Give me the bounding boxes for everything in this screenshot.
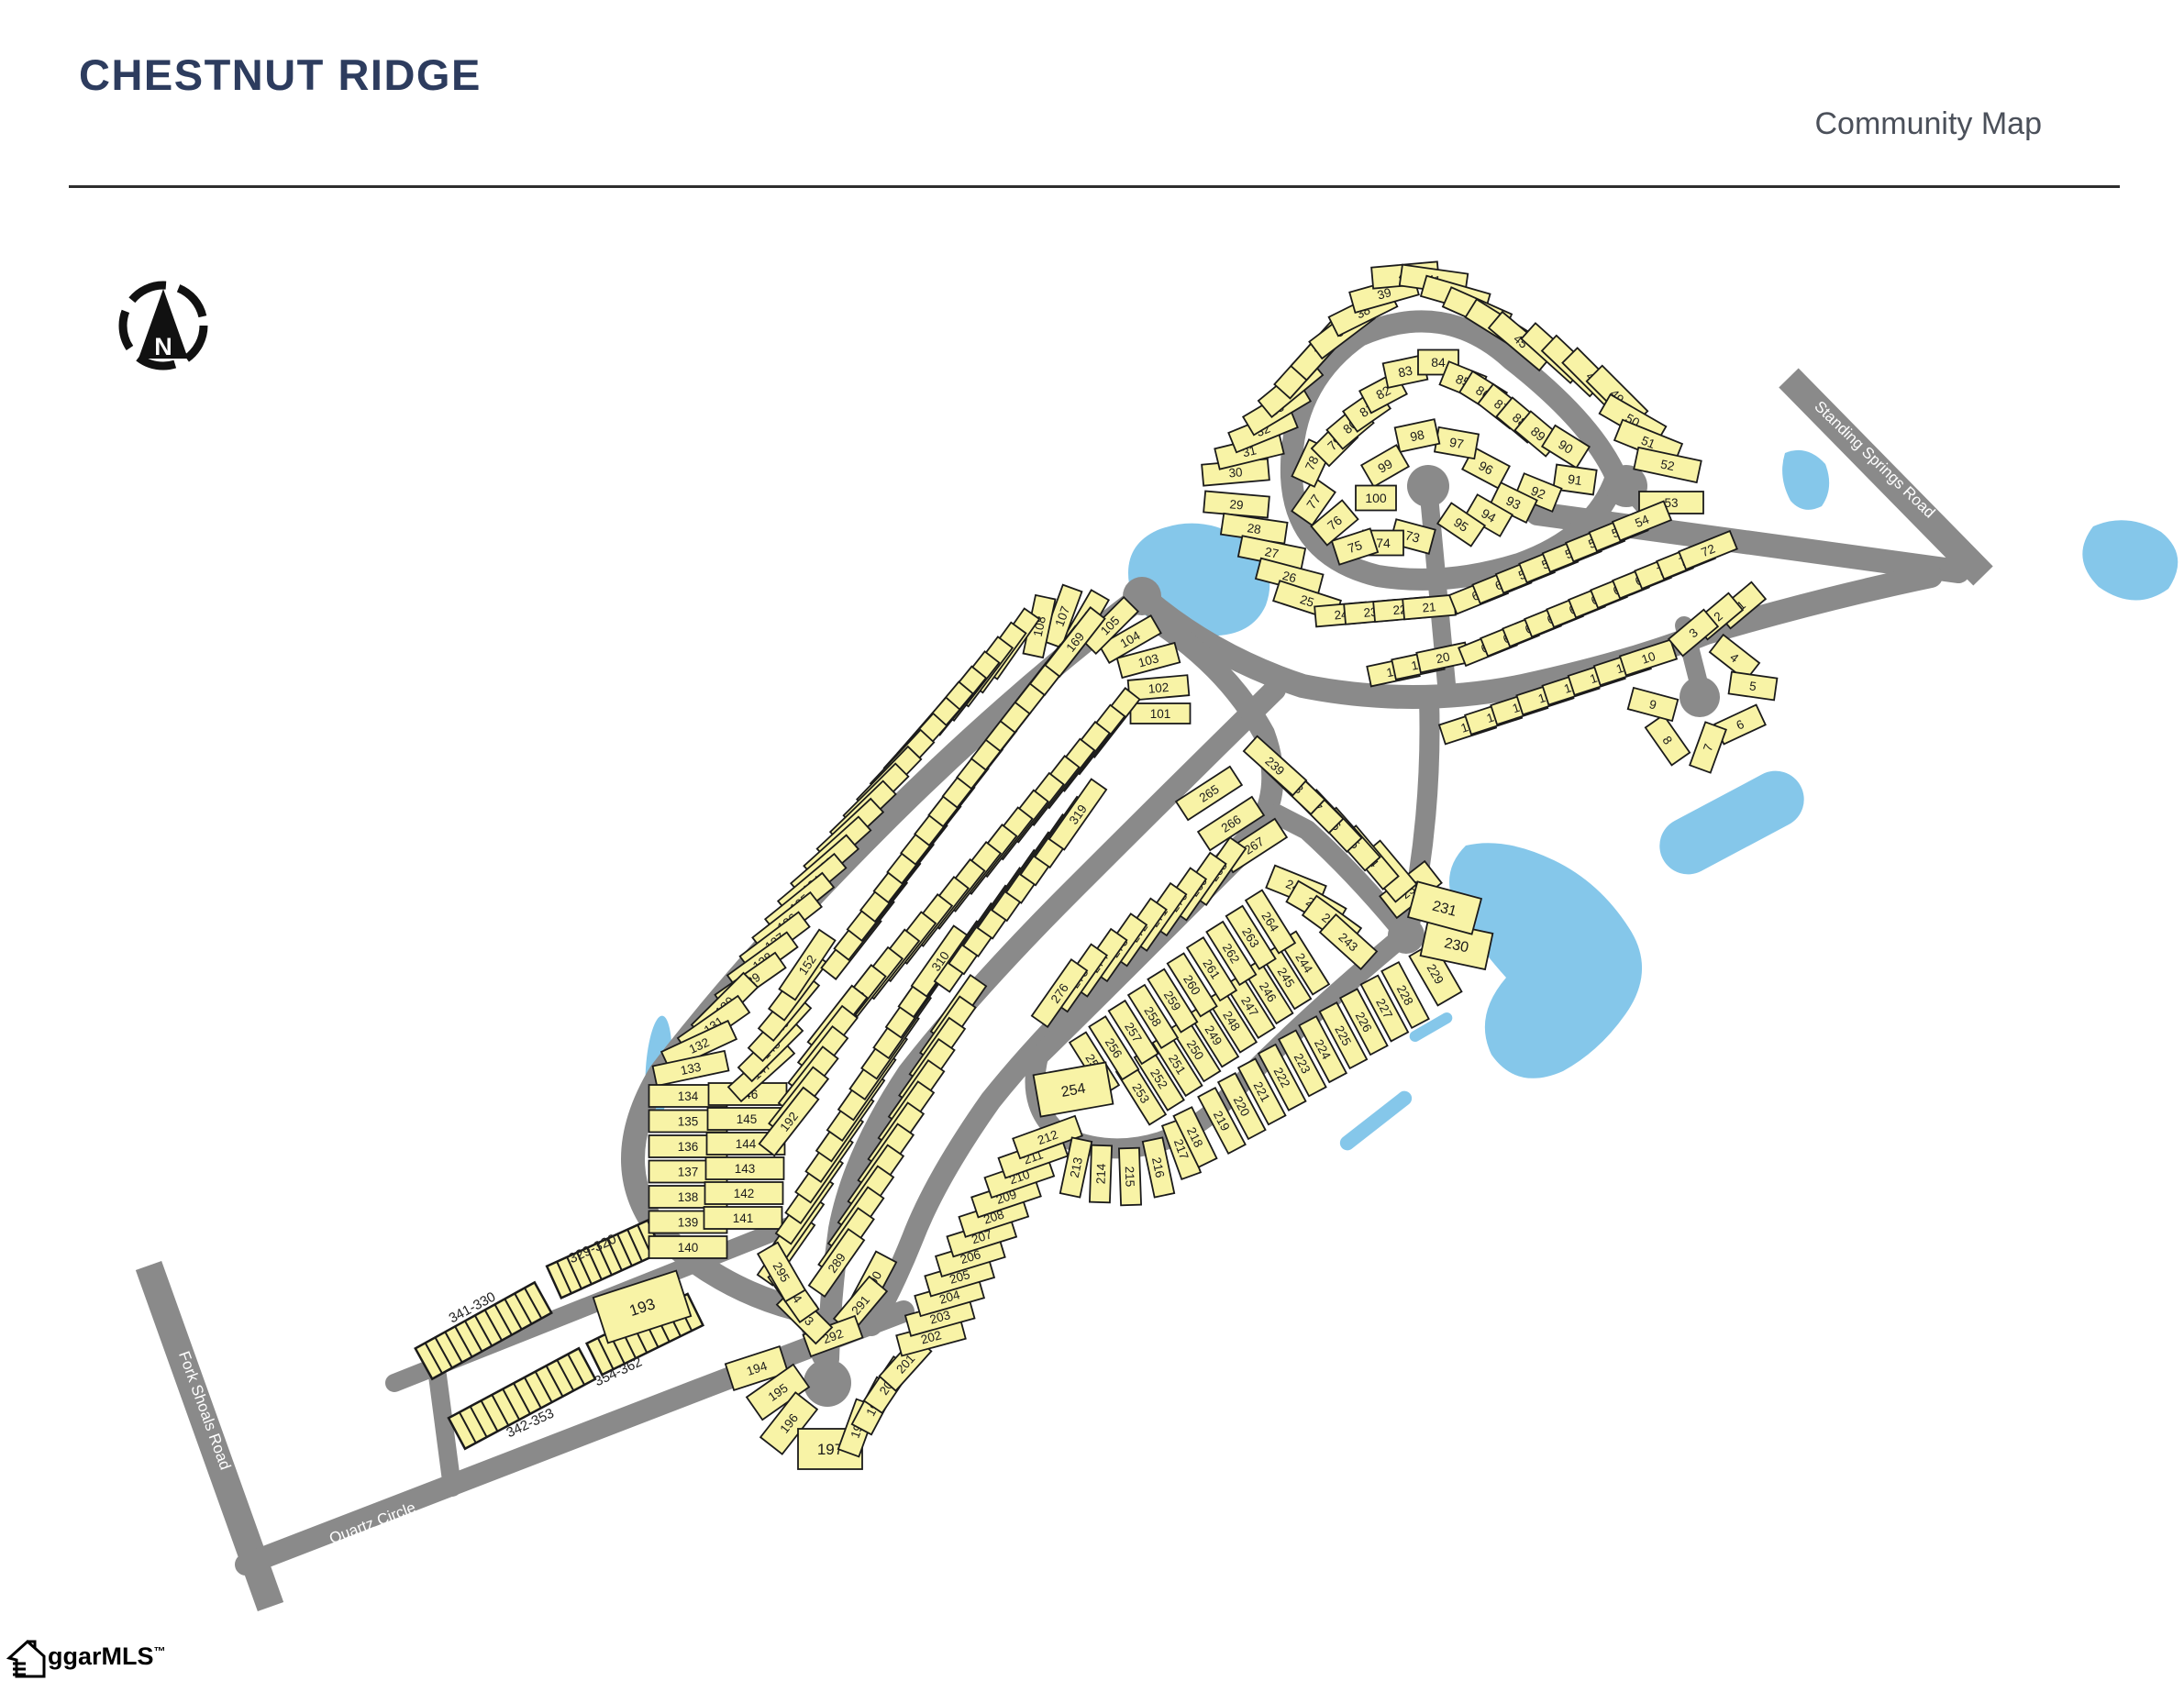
lot-98: 98 <box>1395 419 1440 452</box>
lot-143: 143 <box>706 1157 784 1179</box>
lot-97: 97 <box>1435 427 1479 459</box>
road-label: Standing Springs Road <box>1811 397 1938 521</box>
lot-21: 21 <box>1402 595 1456 620</box>
lot-29: 29 <box>1203 491 1269 517</box>
lot-number: 27 <box>1264 545 1280 561</box>
pond <box>1337 1088 1415 1153</box>
lot-number: 28 <box>1247 521 1262 536</box>
lot-8: 8 <box>1646 715 1690 766</box>
lot-141: 141 <box>704 1207 782 1229</box>
page-subtitle: Community Map <box>1814 106 2042 142</box>
lot-number: 135 <box>678 1114 699 1128</box>
lot-number: 102 <box>1147 680 1170 696</box>
lot-number: 138 <box>678 1190 699 1204</box>
lot-number: 97 <box>1448 435 1465 451</box>
header-divider <box>69 185 2120 188</box>
north-arrow-letter: N <box>154 333 172 360</box>
lot-number: 140 <box>678 1241 699 1255</box>
lot-number: 21 <box>1422 600 1436 614</box>
lot-number: 139 <box>678 1215 699 1229</box>
lot-number: 20 <box>1435 649 1451 666</box>
logo-text: ggarMLS™ <box>48 1642 166 1671</box>
lot-number: 214 <box>1093 1163 1108 1185</box>
lot-number: 74 <box>1376 536 1391 550</box>
page-title: CHESTNUT RIDGE <box>79 50 482 100</box>
lot-number: 141 <box>733 1211 754 1225</box>
lot-5: 5 <box>1729 672 1778 701</box>
pond <box>1782 450 1829 510</box>
lot-number: 100 <box>1365 491 1387 505</box>
strip-connector <box>438 1376 452 1487</box>
lot-number: 101 <box>1150 707 1171 721</box>
lot-number: 52 <box>1659 457 1676 473</box>
trademark: ™ <box>154 1644 166 1658</box>
community-map: 341-330329-320342-353354-362303132333435… <box>0 0 2184 1692</box>
cul-de-sac <box>1388 917 1425 954</box>
lot-number: 145 <box>737 1112 758 1126</box>
lot-number: 137 <box>678 1165 699 1178</box>
lot-number: 91 <box>1567 471 1583 488</box>
lot-140: 140 <box>649 1236 727 1258</box>
cul-de-sac <box>1407 465 1449 507</box>
lot-214: 214 <box>1090 1145 1112 1203</box>
lot-7: 7 <box>1690 722 1726 772</box>
lot-number: 136 <box>678 1140 699 1154</box>
lot-215: 215 <box>1119 1148 1141 1206</box>
lot-number: 142 <box>734 1187 755 1200</box>
mls-logo: ggarMLS™ <box>4 1632 166 1680</box>
lot-number: 215 <box>1123 1166 1137 1187</box>
house-icon <box>4 1632 48 1680</box>
lot-101: 101 <box>1131 703 1191 724</box>
lot-number: 134 <box>678 1089 699 1103</box>
lot-number: 143 <box>735 1162 756 1176</box>
cul-de-sac <box>1680 677 1720 717</box>
community-map-page: 341-330329-320342-353354-362303132333435… <box>0 0 2184 1692</box>
lot-number: 29 <box>1229 497 1244 512</box>
lot-142: 142 <box>705 1182 783 1204</box>
lot-number: 144 <box>736 1137 757 1151</box>
lot-9: 9 <box>1628 688 1679 721</box>
cul-de-sac <box>804 1359 851 1407</box>
pond <box>2082 520 2178 600</box>
lot-number: 84 <box>1431 355 1446 370</box>
lot-100: 100 <box>1356 486 1396 511</box>
pond <box>1649 761 1813 885</box>
